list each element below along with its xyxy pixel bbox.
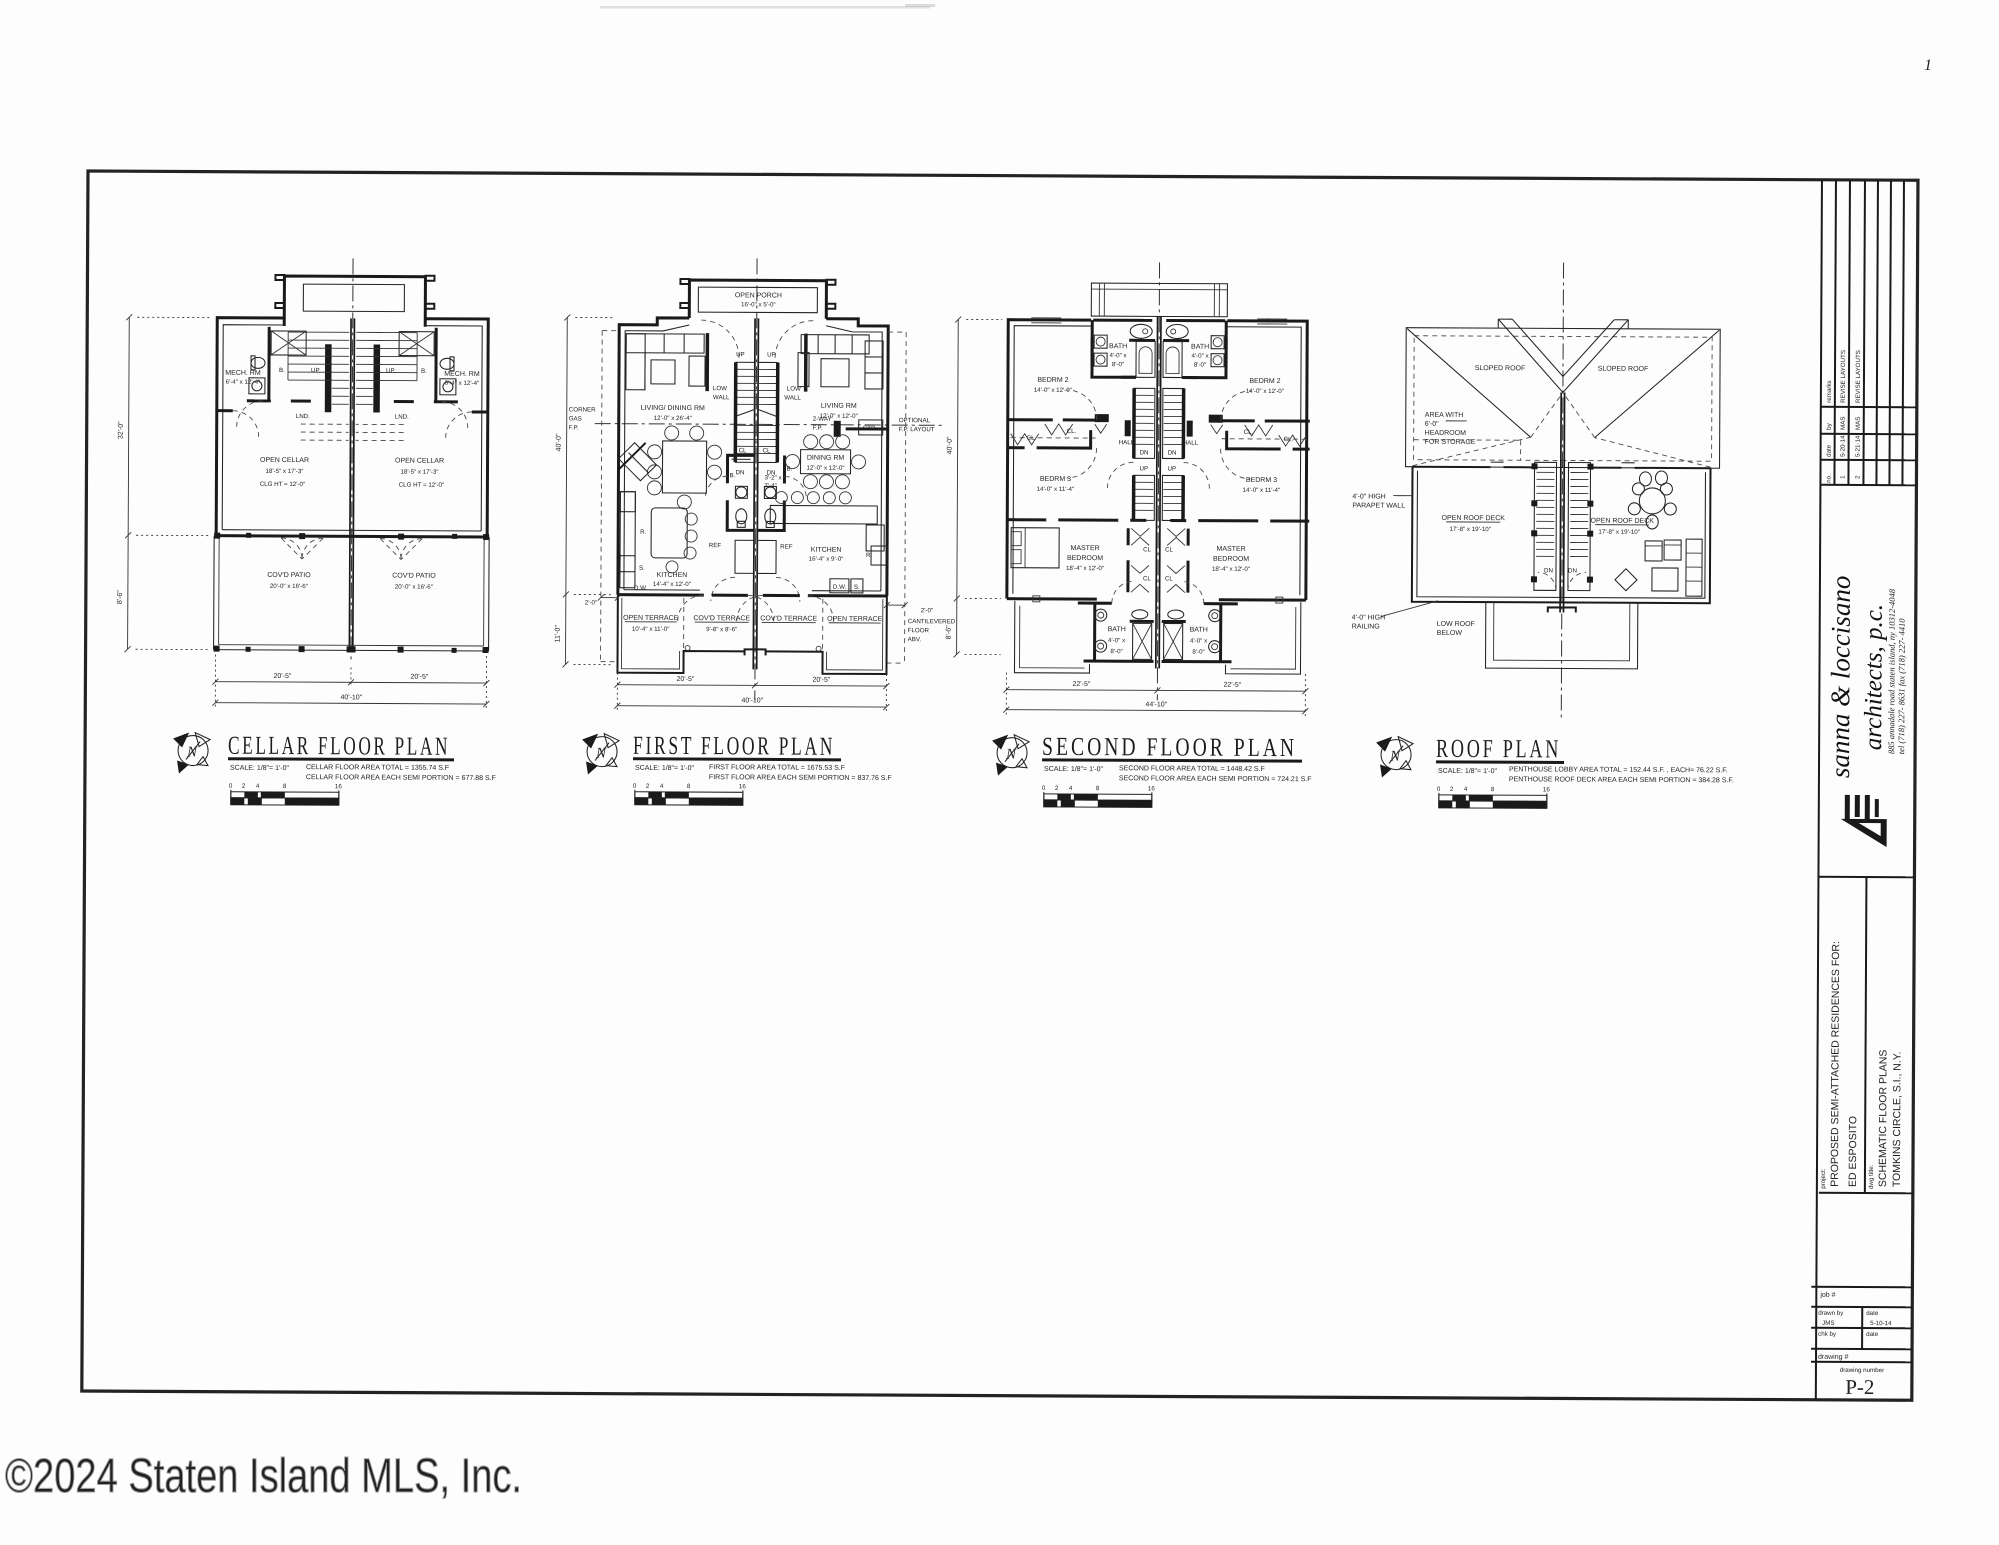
svg-text:COV'D TERRACE: COV'D TERRACE [693, 615, 750, 622]
svg-text:F.P.: F.P. [569, 424, 579, 431]
svg-text:S.: S. [854, 584, 860, 591]
svg-text:MASTER: MASTER [1070, 545, 1099, 552]
svg-text:LIVING/ DINING RM: LIVING/ DINING RM [641, 405, 705, 412]
svg-text:BEDROOM: BEDROOM [1213, 556, 1249, 563]
svg-text:F.P. LAYOUT: F.P. LAYOUT [899, 426, 935, 433]
svg-text:CELLAR FLOOR PLAN: CELLAR FLOOR PLAN [228, 731, 450, 761]
svg-text:CL: CL [1165, 546, 1174, 553]
svg-text:14'-0" x 11'-4": 14'-0" x 11'-4" [1037, 486, 1075, 493]
svg-text:LIVING RM: LIVING RM [821, 403, 857, 410]
svg-text:MAS: MAS [1855, 417, 1862, 430]
svg-text:REVISE LAYOUTS: REVISE LAYOUTS [1855, 350, 1862, 403]
svg-text:FLOOR: FLOOR [908, 627, 930, 634]
svg-text:OPEN PORCH: OPEN PORCH [735, 292, 782, 299]
svg-text:CL.: CL. [1284, 436, 1294, 443]
svg-text:DN: DN [1568, 567, 1577, 574]
svg-text:OPEN TERRACE: OPEN TERRACE [623, 615, 678, 622]
svg-text:SCALE: 1/8"= 1'-0": SCALE: 1/8"= 1'-0" [1438, 768, 1498, 775]
svg-text:PENTHOUSE ROOF DECK AREA EACH: PENTHOUSE ROOF DECK AREA EACH SEMI PORTI… [1509, 776, 1734, 784]
svg-text:14'-0" x 11'-4": 14'-0" x 11'-4" [1243, 487, 1281, 494]
svg-text:dwg title:: dwg title: [1868, 1164, 1875, 1189]
svg-text:tel (718) 227- 8631 fax: tel (718) 227- 8631 fax (718) 227- 4410 [1896, 618, 1907, 755]
svg-text:TOMKINS CIRCLE, S.I., N.Y.: TOMKINS CIRCLE, S.I., N.Y. [1891, 1052, 1904, 1188]
svg-text:DN: DN [1140, 449, 1149, 456]
svg-text:BATH: BATH [1191, 344, 1209, 351]
svg-text:6'-0": 6'-0" [1425, 421, 1439, 428]
svg-text:40'-0": 40'-0" [556, 433, 563, 451]
svg-text:FIRST FLOOR PLAN: FIRST FLOOR PLAN [633, 731, 835, 761]
svg-text:8'-0": 8'-0" [1112, 361, 1124, 368]
svg-text:CL: CL [1143, 546, 1152, 553]
svg-text:REF: REF [780, 544, 793, 551]
svg-text:P-2: P-2 [1845, 1375, 1874, 1399]
svg-text:OPEN ROOF DECK: OPEN ROOF DECK [1591, 518, 1655, 525]
svg-text:SLOPED ROOF: SLOPED ROOF [1475, 365, 1526, 372]
svg-text:LND.: LND. [296, 413, 310, 420]
svg-text:32'-0": 32'-0" [118, 421, 125, 439]
svg-text:UP: UP [1167, 465, 1176, 472]
svg-text:D.W.: D.W. [634, 585, 648, 592]
svg-text:BEDROOM: BEDROOM [1067, 555, 1103, 562]
svg-text:DINING RM: DINING RM [807, 455, 845, 462]
svg-text:UP: UP [1139, 465, 1148, 472]
svg-text:UP: UP [386, 368, 395, 375]
svg-text:16'-0" x 5'-0": 16'-0" x 5'-0" [741, 301, 776, 308]
svg-text:DN: DN [1544, 567, 1553, 574]
svg-text:chk by: chk by [1818, 1331, 1837, 1338]
svg-text:GAS: GAS [569, 415, 582, 422]
svg-text:FIRST FLOOR AREA TOTAL = 1675.: FIRST FLOOR AREA TOTAL = 1675.53 S.F [709, 764, 845, 772]
svg-text:job #: job # [1819, 1292, 1835, 1299]
svg-text:20'-0" x 16'-6": 20'-0" x 16'-6" [395, 584, 433, 591]
svg-text:4'-0" x: 4'-0" x [1108, 637, 1126, 644]
svg-text:B.: B. [421, 368, 427, 375]
svg-text:2'-0": 2'-0" [921, 607, 933, 614]
svg-text:OPEN ROOF DECK: OPEN ROOF DECK [1442, 515, 1506, 522]
svg-text:OPEN TERRACE: OPEN TERRACE [827, 616, 882, 623]
svg-text:CL.: CL. [1067, 428, 1077, 435]
svg-text:5-10-14: 5-10-14 [1870, 1320, 1892, 1327]
svg-text:OPTIONAL: OPTIONAL [899, 417, 931, 424]
svg-text:6'-4" x 12'-4": 6'-4" x 12'-4" [226, 379, 261, 386]
svg-text:DN: DN [735, 469, 744, 476]
svg-text:20'-5": 20'-5" [411, 674, 429, 681]
svg-text:RAILING: RAILING [1352, 623, 1380, 630]
svg-text:18'-4" x 12'-0": 18'-4" x 12'-0" [1066, 565, 1104, 572]
svg-text:SCALE: 1/8"= 1'-0": SCALE: 1/8"= 1'-0" [1044, 766, 1104, 773]
svg-text:WALL: WALL [713, 394, 730, 401]
svg-text:©2024 Staten Island MLS, Inc.: ©2024 Staten Island MLS, Inc. [5, 1450, 522, 1503]
svg-text:14'-0" x 12'-0": 14'-0" x 12'-0" [1034, 387, 1072, 394]
svg-text:SECOND FLOOR AREA EACH SEMI PO: SECOND FLOOR AREA EACH SEMI PORTION = 72… [1119, 775, 1312, 783]
svg-text:8'-0": 8'-0" [1194, 362, 1206, 369]
svg-text:20'-5": 20'-5" [812, 677, 830, 684]
svg-text:4'-0" x: 4'-0" x [1109, 352, 1127, 359]
svg-text:COV'D PATIO: COV'D PATIO [392, 573, 436, 580]
svg-text:AREA WITH: AREA WITH [1425, 412, 1464, 419]
svg-text:CL: CL [739, 447, 748, 454]
svg-text:PENTHOUSE LOBBY AREA TOTAL = 1: PENTHOUSE LOBBY AREA TOTAL = 152.44 S.F.… [1509, 766, 1728, 774]
svg-text:3'-2" x: 3'-2" x [764, 474, 782, 481]
svg-text:drawing number: drawing number [1840, 1367, 1884, 1374]
svg-text:17'-8" x 19'-10": 17'-8" x 19'-10" [1598, 529, 1640, 536]
svg-text:R.: R. [866, 552, 873, 559]
svg-text:DN: DN [1168, 449, 1177, 456]
svg-text:SCALE: 1/8"= 1'-0": SCALE: 1/8"= 1'-0" [230, 765, 290, 772]
svg-text:7'-4": 7'-4" [764, 482, 776, 489]
svg-text:drawn by: drawn by [1818, 1310, 1844, 1317]
svg-text:BEDRM 2: BEDRM 2 [1249, 378, 1280, 385]
svg-text:BATH: BATH [1108, 626, 1126, 633]
svg-text:CTR: CTR [863, 425, 876, 432]
svg-text:ED ESPOSITO: ED ESPOSITO [1847, 1116, 1859, 1187]
svg-text:MECH. RM: MECH. RM [225, 370, 261, 377]
svg-text:CLG HT = 12'-0": CLG HT = 12'-0" [260, 481, 305, 488]
svg-text:5-20-14: 5-20-14 [1840, 435, 1847, 457]
svg-text:8'-6": 8'-6" [946, 625, 953, 639]
svg-text:4'-0" x: 4'-0" x [1190, 638, 1208, 645]
svg-text:no.: no. [1825, 474, 1832, 483]
svg-text:UP: UP [311, 367, 320, 374]
svg-text:5-21-14: 5-21-14 [1855, 435, 1862, 457]
svg-text:11'-0": 11'-0" [555, 625, 562, 643]
svg-text:HALL: HALL [1119, 439, 1135, 446]
svg-text:18'-4" x 12'-0": 18'-4" x 12'-0" [1212, 566, 1250, 573]
svg-text:FIRST FLOOR AREA EACH SEMI POR: FIRST FLOOR AREA EACH SEMI PORTION = 837… [709, 774, 892, 782]
svg-text:2-WAY: 2-WAY [813, 416, 832, 423]
svg-text:MAS: MAS [1840, 416, 1847, 429]
svg-text:BATH: BATH [1109, 343, 1127, 350]
svg-text:sanna & loccisano: sanna & loccisano [1825, 576, 1856, 779]
svg-text:CL: CL [763, 447, 772, 454]
svg-text:KITCHEN: KITCHEN [811, 547, 842, 554]
svg-text:SCALE: 1/8"= 1'-0": SCALE: 1/8"= 1'-0" [635, 765, 695, 772]
svg-text:BEDRM 3: BEDRM 3 [1246, 477, 1277, 484]
svg-text:20'-5": 20'-5" [676, 676, 694, 683]
svg-text:6'-4" x 12'-4": 6'-4" x 12'-4" [445, 380, 480, 387]
svg-text:CL: CL [1143, 575, 1152, 582]
svg-text:CELLAR FLOOR AREA TOTAL = 1355: CELLAR FLOOR AREA TOTAL = 1355.74 S.F [306, 764, 449, 772]
svg-text:date: date [1866, 1310, 1879, 1317]
svg-text:BEDRM 3: BEDRM 3 [1040, 476, 1071, 483]
svg-text:17'-8" x 19'-10": 17'-8" x 19'-10" [1449, 526, 1491, 533]
svg-text:SECOND FLOOR PLAN: SECOND FLOOR PLAN [1042, 732, 1297, 762]
svg-text:CL: CL [1165, 575, 1174, 582]
svg-text:1: 1 [1924, 57, 1932, 74]
svg-text:UP: UP [767, 351, 776, 358]
svg-text:MASTER: MASTER [1216, 546, 1245, 553]
svg-text:SLOPED ROOF: SLOPED ROOF [1598, 366, 1649, 373]
svg-text:LND.: LND. [395, 414, 409, 421]
svg-text:18'-5" x 17'-3": 18'-5" x 17'-3" [400, 469, 438, 476]
svg-text:PARAPET WALL: PARAPET WALL [1352, 502, 1405, 509]
svg-text:44'-10": 44'-10" [1145, 701, 1167, 708]
svg-text:by: by [1826, 422, 1833, 429]
svg-text:BATH: BATH [1190, 627, 1208, 634]
svg-text:8'-6": 8'-6" [117, 590, 124, 604]
svg-text:CL.: CL. [1027, 435, 1037, 442]
svg-text:LOW: LOW [713, 385, 727, 392]
svg-text:HALL: HALL [1183, 440, 1199, 447]
svg-text:architects, p.c.: architects, p.c. [1860, 604, 1888, 750]
svg-text:UP: UP [736, 351, 745, 358]
svg-text:20'-0" x 16'-6": 20'-0" x 16'-6" [270, 583, 308, 590]
svg-text:REF: REF [709, 542, 722, 549]
svg-text:14'-4" x 12'-0": 14'-4" x 12'-0" [653, 581, 691, 588]
svg-text:SECOND FLOOR AREA TOTAL = 1448: SECOND FLOOR AREA TOTAL = 1448.42 S.F [1119, 765, 1265, 773]
svg-text:COV'D PATIO: COV'D PATIO [267, 572, 311, 579]
svg-text:LOW ROOF: LOW ROOF [1437, 621, 1475, 628]
svg-text:CLG HT = 12'-0": CLG HT = 12'-0" [399, 482, 444, 489]
svg-text:B.: B. [729, 472, 735, 479]
svg-text:8'-0": 8'-0" [1110, 648, 1122, 655]
svg-text:4'-0" HIGH: 4'-0" HIGH [1352, 493, 1385, 500]
svg-text:OPEN CELLAR: OPEN CELLAR [260, 457, 309, 464]
svg-text:ROOF PLAN: ROOF PLAN [1436, 734, 1561, 764]
svg-text:KITCHEN: KITCHEN [657, 572, 688, 579]
svg-text:4'-0" x: 4'-0" x [1191, 353, 1209, 360]
svg-text:40'-10": 40'-10" [741, 697, 763, 704]
svg-text:F.P.: F.P. [813, 425, 823, 432]
svg-text:10'-4" x 11'-0": 10'-4" x 11'-0" [632, 626, 670, 633]
svg-text:CELLAR FLOOR AREA EACH SEMI PO: CELLAR FLOOR AREA EACH SEMI PORTION = 67… [306, 774, 496, 782]
svg-text:CL.: CL. [1244, 429, 1254, 436]
svg-text:CANTILEVERED: CANTILEVERED [908, 618, 956, 625]
svg-text:date: date [1826, 444, 1833, 457]
svg-text:D.W.: D.W. [833, 584, 847, 591]
svg-text:2'-0": 2'-0" [585, 600, 597, 607]
svg-text:18'-5" x 17'-3": 18'-5" x 17'-3" [265, 468, 303, 475]
svg-text:20'-5": 20'-5" [274, 673, 292, 680]
svg-text:REVISE LAYOUTS: REVISE LAYOUTS [1840, 350, 1847, 403]
svg-text:B.: B. [279, 367, 285, 374]
svg-text:40'-10": 40'-10" [340, 694, 362, 701]
svg-text:CORNER: CORNER [569, 406, 596, 413]
svg-text:HEADROOM: HEADROOM [1425, 430, 1466, 437]
svg-text:ABV.: ABV. [908, 636, 922, 643]
svg-text:1: 1 [1839, 475, 1846, 479]
svg-text:9'-8" x 8'-6": 9'-8" x 8'-6" [706, 626, 737, 633]
svg-text:SCHEMATIC FLOOR PLANS: SCHEMATIC FLOOR PLANS [1877, 1050, 1890, 1188]
svg-text:MECH. RM: MECH. RM [444, 371, 480, 378]
svg-text:BEDRM 2: BEDRM 2 [1037, 377, 1068, 384]
svg-text:12'-0" x 12'-0": 12'-0" x 12'-0" [806, 465, 844, 472]
svg-text:40'-0": 40'-0" [947, 436, 954, 454]
svg-text:project:: project: [1820, 1168, 1827, 1189]
svg-text:14'-0" x 12'-0": 14'-0" x 12'-0" [1246, 388, 1284, 395]
svg-text:2: 2 [1854, 475, 1861, 479]
svg-text:date: date [1866, 1331, 1879, 1338]
svg-text:4'-0" HIGH: 4'-0" HIGH [1352, 614, 1385, 621]
svg-text:remarks: remarks [1826, 380, 1833, 402]
svg-text:BELOW: BELOW [1437, 630, 1463, 637]
svg-text:R.: R. [640, 529, 647, 536]
svg-text:OPEN CELLAR: OPEN CELLAR [395, 458, 444, 465]
svg-text:COV'D TERRACE: COV'D TERRACE [760, 615, 817, 622]
svg-text:JMS: JMS [1822, 1320, 1834, 1327]
svg-text:16'-4" x 9'-0": 16'-4" x 9'-0" [809, 556, 844, 563]
svg-text:22'-5": 22'-5" [1223, 682, 1241, 689]
svg-text:8'-0": 8'-0" [1192, 649, 1204, 656]
svg-text:S.: S. [639, 565, 645, 572]
svg-text:drawing #: drawing # [1818, 1354, 1848, 1361]
svg-text:PROPOSED SEMI-ATTACHED RESIDEN: PROPOSED SEMI-ATTACHED RESIDENCES FOR: [1829, 941, 1842, 1187]
svg-text:12'-0" x 26'-4": 12'-0" x 26'-4" [654, 415, 692, 422]
svg-text:22'-5": 22'-5" [1072, 681, 1090, 688]
svg-text:WALL: WALL [784, 395, 801, 402]
